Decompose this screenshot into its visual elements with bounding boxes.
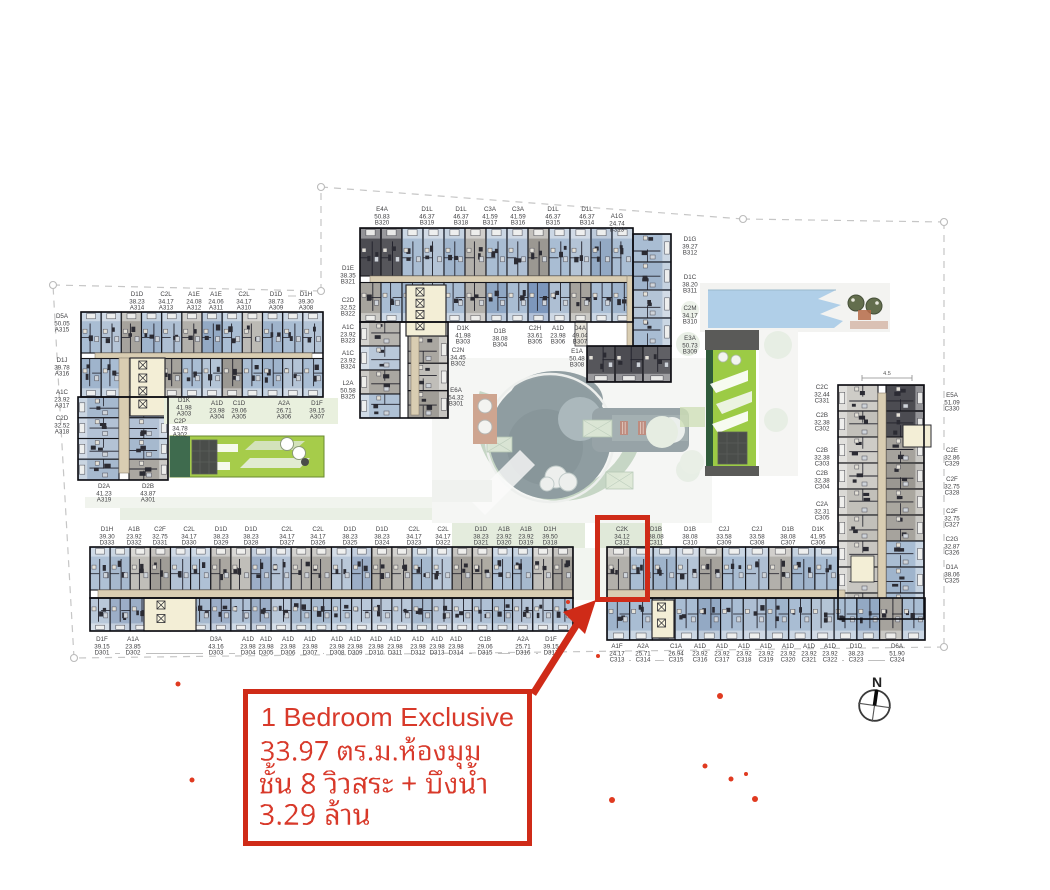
svg-text:D1H39.30A308: D1H39.30A308 <box>298 291 314 312</box>
svg-text:A1D23.92C319: A1D23.92C319 <box>758 643 774 664</box>
svg-text:C1A26.94C315: C1A26.94C315 <box>668 643 684 664</box>
svg-text:A1D23.98D312: A1D23.98D312 <box>410 636 426 657</box>
svg-text:D2B43.87A301: D2B43.87A301 <box>140 483 156 504</box>
svg-text:A1D23.98D306: A1D23.98D306 <box>280 636 296 657</box>
svg-text:A1D23.92C322: A1D23.92C322 <box>822 643 838 664</box>
svg-text:D1D38.23D321: D1D38.23D321 <box>473 526 489 547</box>
svg-text:D5A50.05A315: D5A50.05A315 <box>54 313 70 334</box>
svg-text:C3A41.59B316: C3A41.59B316 <box>510 206 526 227</box>
svg-text:C2A32.31C305: C2A32.31C305 <box>814 501 830 522</box>
svg-text:C3A41.59B317: C3A41.59B317 <box>482 206 498 227</box>
svg-text:A1D23.98A304: A1D23.98A304 <box>209 400 225 421</box>
svg-text:C2B32.38C304: C2B32.38C304 <box>814 470 830 491</box>
svg-text:C2H33.61B305: C2H33.61B305 <box>527 325 543 346</box>
svg-text:D1D38.23A314: D1D38.23A314 <box>129 291 145 312</box>
svg-text:D3A43.16D303: D3A43.16D303 <box>208 636 224 657</box>
svg-text:A1D23.98D313: A1D23.98D313 <box>429 636 445 657</box>
svg-text:N: N <box>872 674 882 690</box>
svg-text:A1D23.98B306: A1D23.98B306 <box>550 325 566 346</box>
svg-text:C2B32.38C302: C2B32.38C302 <box>814 412 830 433</box>
svg-text:C1B29.06D315: C1B29.06D315 <box>477 636 493 657</box>
svg-text:D1E38.35B321: D1E38.35B321 <box>340 265 356 286</box>
svg-text:D1K41.95C306: D1K41.95C306 <box>810 526 826 547</box>
svg-text:D1D38.23D329: D1D38.23D329 <box>213 526 229 547</box>
svg-text:C2P34.78A302: C2P34.78A302 <box>172 418 188 439</box>
svg-text:C2G32.87C326: C2G32.87C326 <box>944 536 960 557</box>
svg-text:D1B38.08B304: D1B38.08B304 <box>492 328 508 349</box>
svg-text:C2E32.86C329: C2E32.86C329 <box>944 447 960 468</box>
svg-text:D1K41.98A303: D1K41.98A303 <box>176 397 192 418</box>
svg-text:D1B38.08C311: D1B38.08C311 <box>648 526 664 547</box>
svg-text:A1D23.98D309: A1D23.98D309 <box>347 636 363 657</box>
svg-text:D1H39.30D333: D1H39.30D333 <box>99 526 115 547</box>
svg-text:C2N34.45B302: C2N34.45B302 <box>450 347 466 368</box>
svg-text:D1B38.08C310: D1B38.08C310 <box>682 526 698 547</box>
svg-text:D4A49.04B307: D4A49.04B307 <box>572 325 588 346</box>
svg-text:A1C23.92B324: A1C23.92B324 <box>340 350 356 371</box>
svg-text:A1C23.92B323: A1C23.92B323 <box>340 324 356 345</box>
svg-text:C2M34.17B310: C2M34.17B310 <box>682 305 698 326</box>
svg-text:C2D32.52B322: C2D32.52B322 <box>340 297 356 318</box>
svg-text:D1D38.23D324: D1D38.23D324 <box>374 526 390 547</box>
svg-text:A1D23.92C316: A1D23.92C316 <box>692 643 708 664</box>
svg-text:D1D38.23C323: D1D38.23C323 <box>848 643 864 664</box>
svg-text:A1D23.92C320: A1D23.92C320 <box>780 643 796 664</box>
svg-text:D1A38.06C325: D1A38.06C325 <box>944 564 960 585</box>
svg-text:C2K34.12C312: C2K34.12C312 <box>614 526 630 547</box>
svg-text:D1K41.98B303: D1K41.98B303 <box>455 325 471 346</box>
svg-text:A1D23.98D314: A1D23.98D314 <box>448 636 464 657</box>
svg-text:A1D23.98D304: A1D23.98D304 <box>240 636 256 657</box>
svg-text:D1D38.23D325: D1D38.23D325 <box>342 526 358 547</box>
svg-text:C2B32.38C303: C2B32.38C303 <box>814 447 830 468</box>
svg-text:C2C32.44C331: C2C32.44C331 <box>814 384 830 405</box>
svg-text:D6A51.90C324: D6A51.90C324 <box>889 643 905 664</box>
svg-text:C2D32.52A318: C2D32.52A318 <box>54 415 70 436</box>
svg-text:A1D23.98D310: A1D23.98D310 <box>368 636 384 657</box>
svg-text:D2A41.23A319: D2A41.23A319 <box>96 483 112 504</box>
svg-text:A1D23.98D305: A1D23.98D305 <box>258 636 274 657</box>
svg-text:D1C38.20B311: D1C38.20B311 <box>682 274 698 295</box>
svg-text:C1D29.06A305: C1D29.06A305 <box>231 400 247 421</box>
svg-text:1 Bedroom Exclusive: 1 Bedroom Exclusive <box>261 702 514 732</box>
svg-text:D1H39.50D318: D1H39.50D318 <box>542 526 558 547</box>
svg-text:A1D23.92C321: A1D23.92C321 <box>801 643 817 664</box>
svg-text:A1D23.98D307: A1D23.98D307 <box>302 636 318 657</box>
svg-text:A1C23.92A317: A1C23.92A317 <box>54 389 70 410</box>
svg-text:A1D23.98D308: A1D23.98D308 <box>329 636 345 657</box>
svg-text:D1D38.23D328: D1D38.23D328 <box>243 526 259 547</box>
svg-text:D1B38.08C307: D1B38.08C307 <box>780 526 796 547</box>
svg-text:A1G24.74B313: A1G24.74B313 <box>609 213 625 234</box>
svg-text:A1D23.92C317: A1D23.92C317 <box>714 643 730 664</box>
svg-text:A1D23.92C318: A1D23.92C318 <box>736 643 752 664</box>
svg-text:4.5: 4.5 <box>883 371 891 377</box>
svg-text:D1D38.73A309: D1D38.73A309 <box>268 291 284 312</box>
svg-text:D1G39.27B312: D1G39.27B312 <box>682 236 698 257</box>
svg-text:A1D23.98D311: A1D23.98D311 <box>387 636 403 657</box>
